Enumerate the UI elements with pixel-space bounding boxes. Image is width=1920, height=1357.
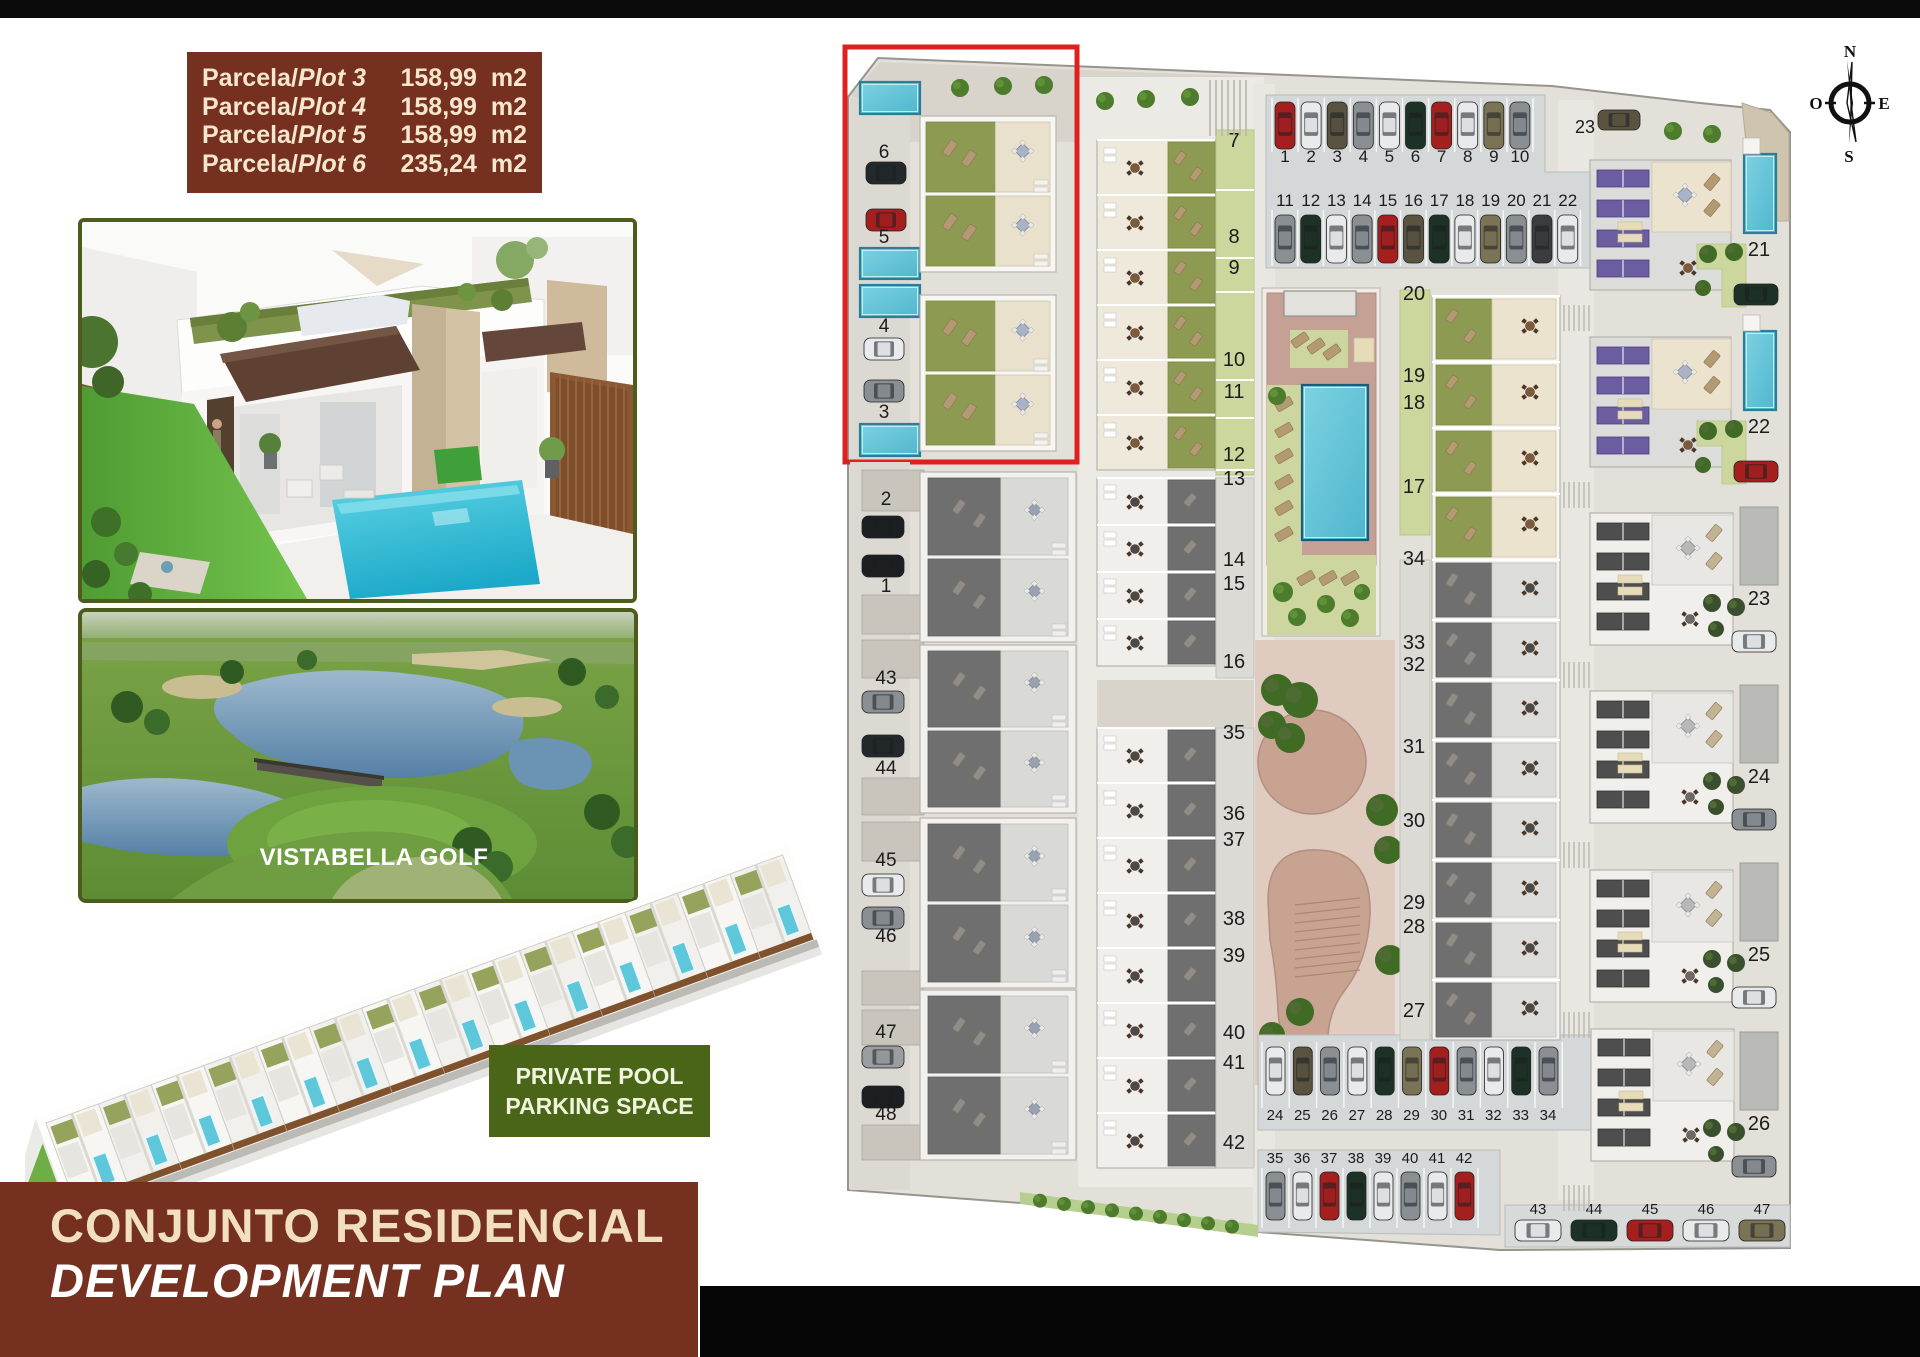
svg-text:19: 19 [1403,365,1425,387]
svg-text:12: 12 [1223,444,1245,466]
svg-text:22: 22 [1748,416,1770,438]
svg-text:42: 42 [1456,1150,1473,1167]
svg-text:41: 41 [1429,1150,1446,1167]
svg-text:38: 38 [1348,1150,1365,1167]
svg-text:8: 8 [1463,147,1472,166]
svg-text:33: 33 [1403,632,1425,654]
svg-text:37: 37 [1321,1150,1338,1167]
svg-text:7: 7 [1437,147,1446,166]
svg-text:25: 25 [1294,1107,1311,1124]
svg-text:10: 10 [1510,147,1529,166]
svg-text:25: 25 [1748,944,1770,966]
svg-text:23: 23 [1748,588,1770,610]
svg-text:40: 40 [1223,1022,1245,1044]
svg-text:23: 23 [1575,117,1595,137]
svg-text:36: 36 [1223,803,1245,825]
svg-text:24: 24 [1267,1107,1284,1124]
svg-text:45: 45 [1642,1201,1659,1218]
svg-text:43: 43 [1530,1201,1547,1218]
svg-text:33: 33 [1512,1107,1529,1124]
svg-text:22: 22 [1558,191,1577,210]
svg-text:15: 15 [1223,573,1245,595]
svg-text:14: 14 [1353,191,1372,210]
svg-text:3: 3 [1332,147,1341,166]
svg-text:21: 21 [1533,191,1552,210]
svg-text:39: 39 [1223,945,1245,967]
svg-text:39: 39 [1375,1150,1392,1167]
svg-text:6: 6 [1411,147,1420,166]
svg-text:45: 45 [875,850,896,871]
svg-text:5: 5 [1385,147,1394,166]
svg-text:4: 4 [1359,147,1368,166]
svg-text:2: 2 [881,489,892,510]
svg-text:28: 28 [1403,916,1425,938]
svg-text:40: 40 [1402,1150,1419,1167]
svg-text:16: 16 [1223,651,1245,673]
svg-text:31: 31 [1403,736,1425,758]
svg-text:34: 34 [1403,548,1425,570]
svg-text:30: 30 [1430,1107,1447,1124]
svg-text:41: 41 [1223,1052,1245,1074]
svg-text:20: 20 [1507,191,1526,210]
svg-text:13: 13 [1327,191,1346,210]
svg-text:27: 27 [1403,1000,1425,1022]
svg-text:24: 24 [1748,766,1770,788]
svg-text:15: 15 [1378,191,1397,210]
svg-text:46: 46 [1698,1201,1715,1218]
svg-text:S: S [1844,147,1853,166]
svg-text:37: 37 [1223,829,1245,851]
svg-text:26: 26 [1321,1107,1338,1124]
svg-text:36: 36 [1294,1150,1311,1167]
svg-text:18: 18 [1403,392,1425,414]
svg-text:32: 32 [1485,1107,1502,1124]
svg-text:3: 3 [879,402,890,423]
svg-text:27: 27 [1349,1107,1366,1124]
svg-text:O: O [1809,94,1822,113]
svg-text:48: 48 [875,1104,896,1125]
svg-text:34: 34 [1540,1107,1557,1124]
svg-text:38: 38 [1223,908,1245,930]
svg-text:14: 14 [1223,549,1245,571]
svg-text:16: 16 [1404,191,1423,210]
svg-text:2: 2 [1306,147,1315,166]
svg-text:13: 13 [1223,468,1245,490]
svg-text:12: 12 [1301,191,1320,210]
svg-text:6: 6 [879,142,890,163]
svg-text:9: 9 [1228,257,1239,279]
svg-text:46: 46 [875,926,896,947]
svg-text:31: 31 [1458,1107,1475,1124]
svg-text:44: 44 [875,758,897,779]
svg-text:8: 8 [1228,226,1239,248]
svg-text:17: 17 [1403,476,1425,498]
svg-text:1: 1 [881,576,892,597]
svg-text:28: 28 [1376,1107,1393,1124]
svg-text:30: 30 [1403,810,1425,832]
svg-text:42: 42 [1223,1132,1245,1154]
svg-text:19: 19 [1481,191,1500,210]
svg-text:20: 20 [1403,283,1425,305]
svg-text:26: 26 [1748,1113,1770,1135]
svg-text:1: 1 [1280,147,1289,166]
svg-text:32: 32 [1403,654,1425,676]
svg-text:47: 47 [1754,1201,1771,1218]
svg-text:18: 18 [1455,191,1474,210]
svg-text:11: 11 [1224,381,1245,403]
svg-text:47: 47 [875,1022,896,1043]
svg-text:29: 29 [1403,1107,1420,1124]
svg-text:5: 5 [879,227,890,248]
svg-text:35: 35 [1223,722,1245,744]
svg-text:10: 10 [1223,349,1245,371]
svg-text:21: 21 [1748,239,1770,261]
svg-text:17: 17 [1430,191,1449,210]
svg-text:29: 29 [1403,892,1425,914]
svg-text:11: 11 [1276,191,1294,210]
svg-text:9: 9 [1489,147,1498,166]
svg-text:N: N [1844,42,1857,61]
svg-text:44: 44 [1586,1201,1603,1218]
svg-text:43: 43 [875,668,896,689]
svg-text:35: 35 [1267,1150,1284,1167]
svg-text:4: 4 [879,316,890,337]
svg-text:E: E [1878,94,1889,113]
